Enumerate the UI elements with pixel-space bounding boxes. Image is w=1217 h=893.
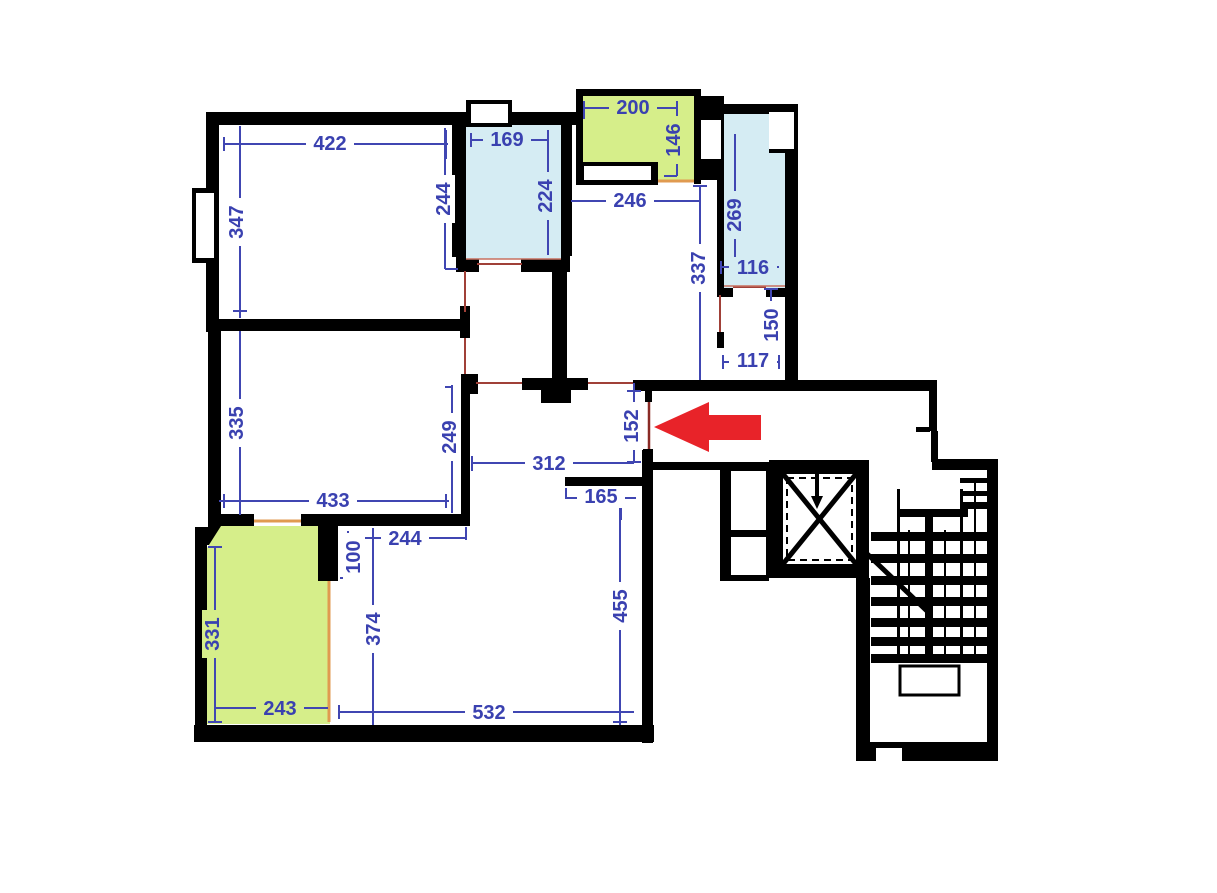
svg-text:150: 150	[761, 308, 783, 341]
svg-text:433: 433	[316, 490, 349, 512]
svg-text:347: 347	[226, 205, 248, 238]
svg-text:244: 244	[433, 181, 455, 215]
svg-text:165: 165	[584, 486, 617, 508]
svg-text:335: 335	[226, 406, 248, 439]
svg-text:422: 422	[313, 133, 346, 155]
svg-text:224: 224	[535, 178, 557, 212]
svg-text:169: 169	[490, 129, 523, 151]
svg-text:246: 246	[613, 190, 646, 212]
svg-text:116: 116	[737, 257, 769, 279]
svg-text:249: 249	[439, 420, 461, 453]
svg-text:532: 532	[472, 702, 505, 724]
svg-text:200: 200	[616, 97, 649, 119]
svg-text:244: 244	[388, 528, 422, 550]
svg-text:374: 374	[363, 611, 385, 645]
svg-text:117: 117	[737, 350, 769, 372]
svg-text:152: 152	[621, 409, 643, 442]
svg-text:269: 269	[724, 198, 746, 231]
svg-text:100: 100	[343, 540, 365, 573]
svg-text:455: 455	[610, 589, 632, 622]
svg-text:243: 243	[263, 698, 296, 720]
svg-text:337: 337	[688, 251, 710, 284]
svg-text:331: 331	[202, 617, 224, 650]
svg-text:146: 146	[663, 123, 685, 156]
svg-text:312: 312	[532, 453, 565, 475]
